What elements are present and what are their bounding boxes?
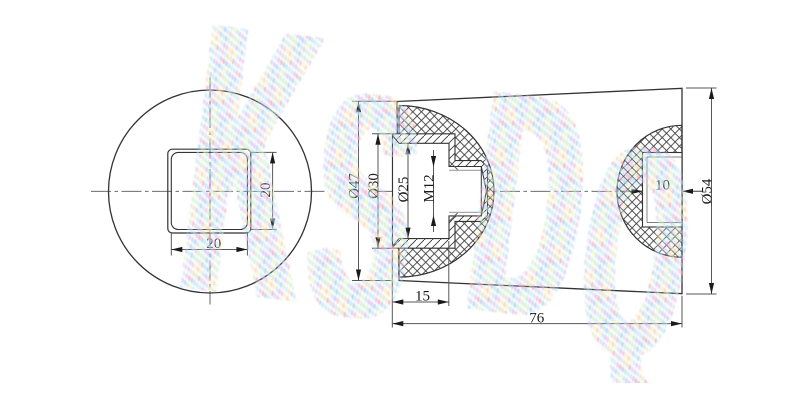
svg-text:M12: M12: [421, 174, 437, 202]
svg-text:15: 15: [415, 289, 430, 305]
